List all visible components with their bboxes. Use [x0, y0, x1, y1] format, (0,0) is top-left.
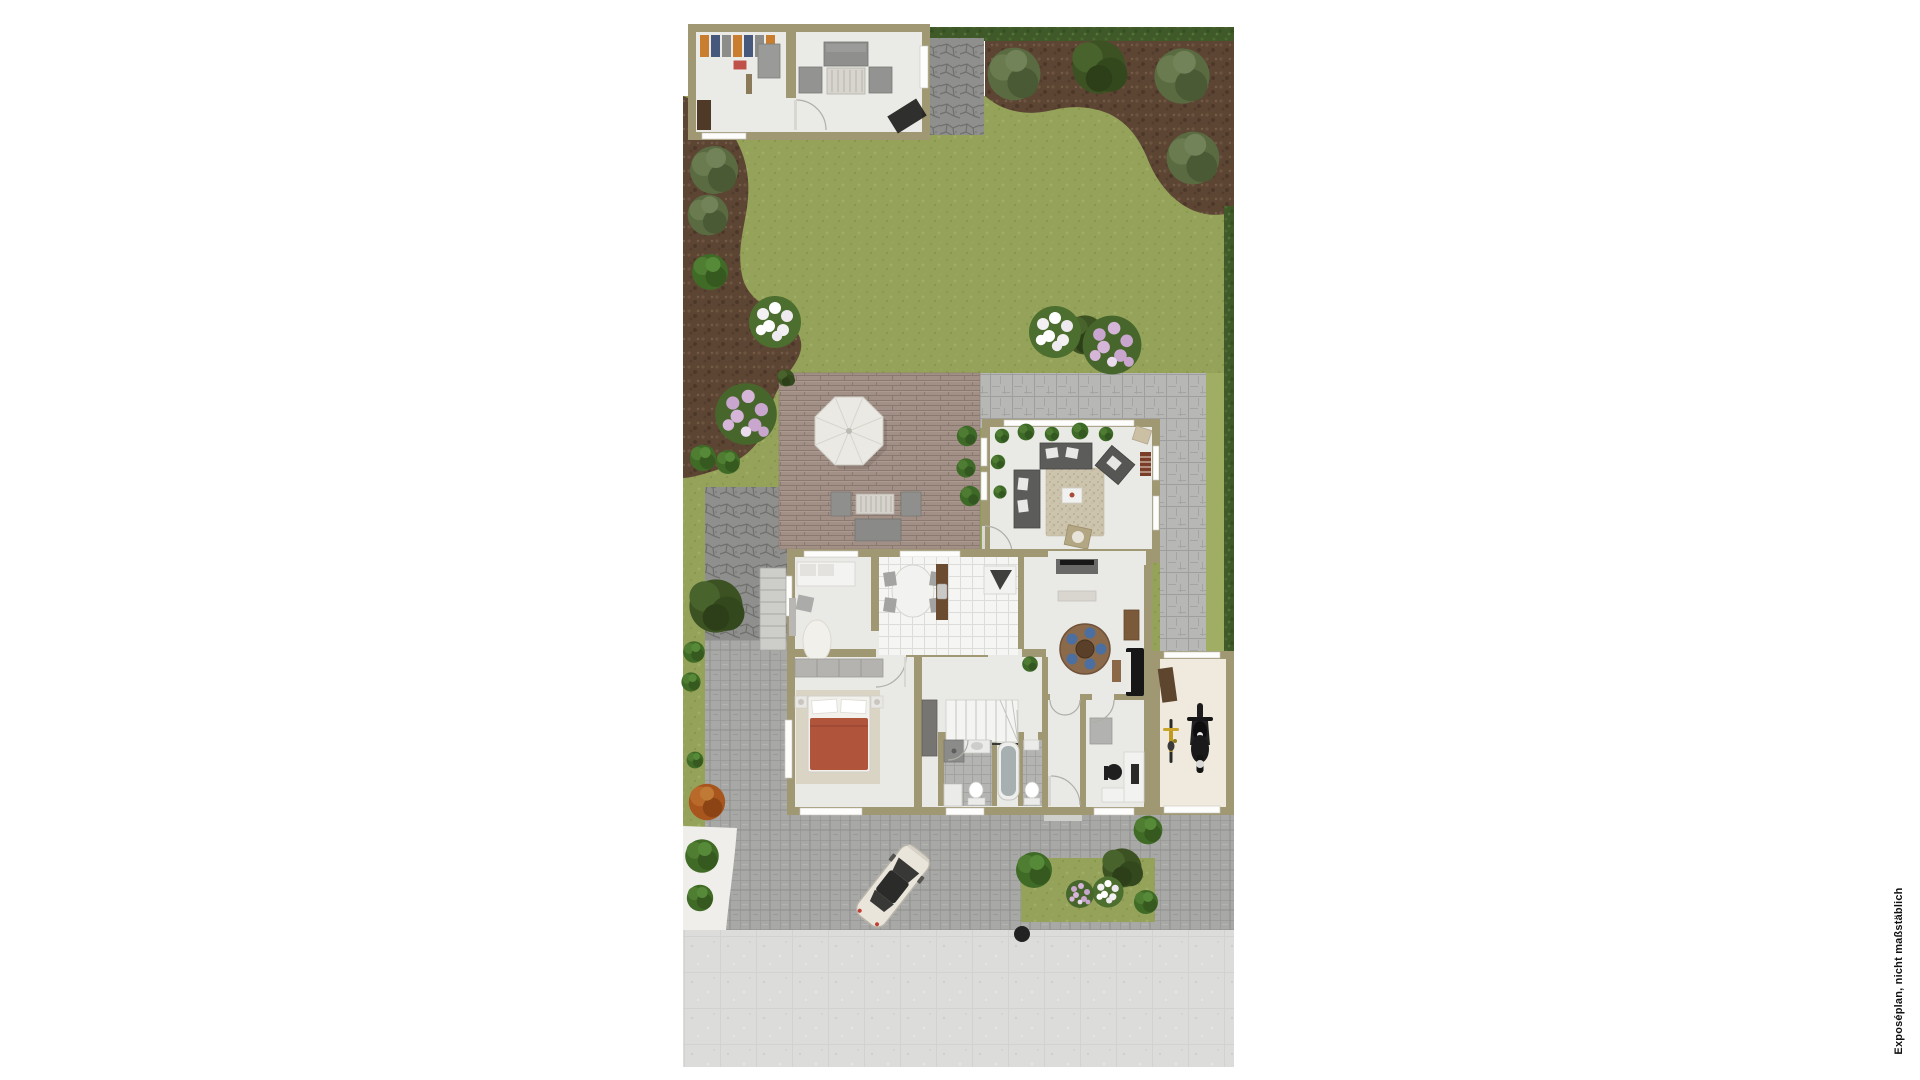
bedside-lamp [798, 699, 804, 705]
front-garden-bush [1016, 852, 1052, 888]
houseplant [995, 429, 1009, 443]
window [946, 808, 984, 815]
sofa-cushion [1017, 478, 1028, 491]
wall-kitchen-hall [1018, 557, 1024, 649]
toilet [969, 782, 983, 798]
bush [690, 445, 716, 471]
living-window-left [981, 438, 987, 466]
window [785, 720, 792, 778]
hedge-bush [681, 672, 700, 691]
deck-planter [960, 486, 980, 506]
bedroom-door-leaf [904, 657, 906, 687]
wicker-chair-cushion [1072, 531, 1084, 543]
houseplant [1045, 427, 1059, 441]
storage-shelf-box [711, 35, 720, 57]
small-shelf [746, 74, 752, 94]
hedge-right [1224, 206, 1234, 657]
lawn-shrub-pink [1083, 316, 1142, 375]
wall-entry-right [1080, 694, 1086, 815]
sofa-cushion [1045, 447, 1058, 459]
doorway-office [1092, 694, 1114, 700]
bush [716, 450, 740, 474]
wall-bedroom-right [914, 657, 922, 815]
sofa-cushion [1065, 447, 1079, 459]
floor-cushion [1085, 659, 1096, 670]
deck-table [856, 494, 894, 514]
desk-return [1102, 788, 1124, 802]
chaise-cushion [818, 564, 834, 576]
bush [988, 48, 1041, 101]
houseplant [1072, 423, 1089, 440]
garden-house-door-leaf [794, 100, 797, 130]
bush [688, 195, 729, 236]
piano-keys [1126, 652, 1131, 692]
sofa-cushion [1017, 499, 1028, 512]
exposeplan-page: Exposéplan, nicht maßstäblich [0, 0, 1920, 1080]
storage-shelf-box [744, 35, 753, 57]
storage-shelf-box [700, 35, 709, 57]
front-garden-bush [1134, 890, 1158, 914]
console-table [1058, 591, 1096, 601]
office-chair [1106, 764, 1122, 780]
office-chair-back [1104, 766, 1108, 780]
garden-house-window-right [920, 46, 928, 88]
hedge-bush [687, 752, 704, 769]
dining-table [892, 565, 934, 617]
driveway-bush [1134, 816, 1163, 845]
window [1094, 808, 1134, 815]
chaise-cushion [800, 564, 816, 576]
bedside-lamp [874, 699, 880, 705]
houseplant [1022, 656, 1038, 672]
gravel-bush [685, 839, 719, 873]
front-garden-flowers-pink [1066, 880, 1094, 908]
wall-lounge-kitchen [871, 557, 879, 631]
bed-pillow [841, 699, 867, 713]
bed-pillow [812, 699, 838, 714]
bush [1167, 132, 1220, 185]
houseplant [1018, 424, 1035, 441]
wall-entry-left [1042, 657, 1048, 815]
window [900, 551, 960, 557]
storage-shelf-box [722, 35, 731, 57]
sideboard [1124, 610, 1139, 640]
garden-house-armchair [799, 67, 822, 93]
deck-armchair-left [831, 492, 851, 516]
flowering-shrub-white [749, 296, 801, 348]
houseplant [993, 485, 1006, 498]
garage-window-top [1164, 652, 1220, 658]
piano-bench [1112, 660, 1121, 682]
wall-bath-left [938, 740, 944, 806]
floor-cushion [1067, 654, 1078, 665]
doorway-wc [1024, 732, 1038, 740]
deck-planter [957, 426, 977, 446]
orange-bush [689, 784, 725, 820]
parasol-pole [846, 428, 852, 434]
wc-sink [1024, 740, 1039, 750]
deck-armchair-right [901, 492, 921, 516]
floor-plan-svg [0, 0, 1920, 1080]
small-red-table [733, 60, 747, 70]
bush [1154, 48, 1209, 103]
lawn-strip-right [1206, 373, 1224, 657]
garden-house-sideboard [758, 44, 780, 78]
deck-planter [956, 458, 975, 477]
tv [1060, 560, 1094, 565]
deck-sofa [855, 519, 901, 541]
stone-path [930, 38, 984, 135]
garden-house-window-bottom [702, 133, 746, 139]
front-garden-flowers-white [1092, 876, 1123, 907]
bathtub-water [1001, 746, 1016, 796]
wc-toilet [1025, 782, 1039, 798]
dark-cabinet [697, 100, 711, 130]
bathroom-sink [971, 742, 983, 750]
garden-house-table [827, 68, 865, 94]
entry-step [1044, 815, 1082, 821]
round-table [1076, 640, 1094, 658]
floor-cushion [1085, 628, 1096, 639]
floor-cushion [1096, 644, 1107, 655]
dining-chair [883, 597, 897, 613]
table-decor [1070, 493, 1075, 498]
living-window-right [1153, 446, 1159, 480]
kitchen-sink [937, 584, 947, 599]
living-window-left [981, 472, 987, 500]
dining-chair [883, 571, 897, 587]
lawn-shrub-white [1029, 306, 1081, 358]
staircase [946, 700, 1018, 742]
plan-caption-text: Exposéplan, nicht maßstäblich [1893, 887, 1905, 1054]
bush [692, 254, 728, 290]
storage-shelf-box [733, 35, 742, 57]
wc-toilet-tank [1024, 798, 1040, 805]
shower-drain [952, 749, 957, 754]
window [804, 551, 858, 557]
houseplant [991, 455, 1005, 469]
street-marker-dot [1014, 926, 1030, 942]
wall-tub [992, 740, 997, 806]
flowering-shrub-pink [715, 383, 777, 445]
street [683, 930, 1234, 1067]
bush [690, 146, 738, 194]
wall-shelf [789, 598, 796, 636]
deck-table-slats [861, 496, 891, 512]
garden-house-armchair [869, 67, 892, 93]
houseplant [1099, 427, 1113, 441]
window [800, 808, 862, 815]
toilet-tank [968, 798, 985, 805]
front-door-leaf [1048, 776, 1051, 806]
floor-cushion [1067, 634, 1078, 645]
garage-window-bottom [1164, 806, 1220, 813]
hall-wardrobe [922, 700, 937, 756]
monitor [1131, 764, 1139, 784]
doorway-entry-double [1050, 694, 1080, 700]
living-window-right [1153, 496, 1159, 530]
gravel-bush [687, 885, 713, 911]
hedge-bush [683, 641, 705, 663]
oval-rug [803, 620, 831, 662]
shower-tray [944, 784, 962, 806]
garden-house-sofa-back [826, 44, 866, 52]
